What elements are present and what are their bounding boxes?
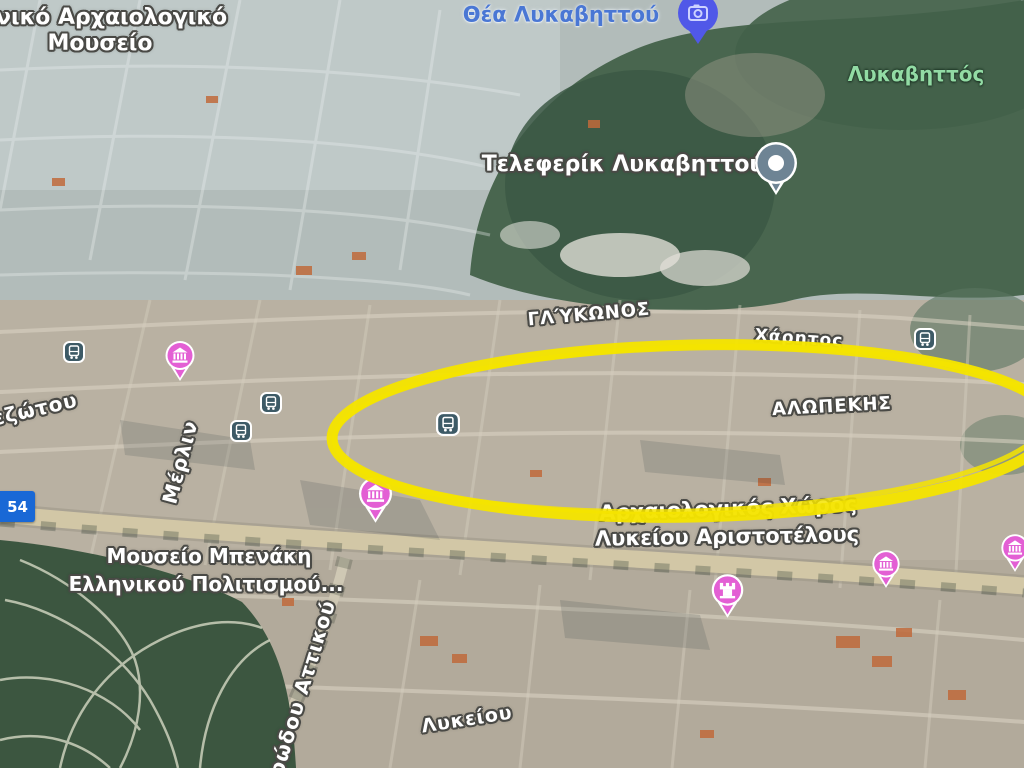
transit-icon[interactable] bbox=[914, 328, 936, 350]
label-funicular[interactable]: Τελεφερίκ Λυκαβηττού bbox=[482, 154, 765, 176]
photo-spot-pin[interactable] bbox=[676, 0, 720, 46]
route-badge-54: 54 bbox=[0, 491, 35, 522]
museum-icon bbox=[356, 476, 395, 525]
bus-icon bbox=[260, 392, 282, 414]
museum-pin[interactable] bbox=[163, 340, 197, 383]
label-national-archaeological-museum-line2[interactable]: Μουσείο bbox=[48, 33, 153, 55]
map-viewport: θνικό Αρχαιολογικό Μουσείο Θέα Λυκαβηττο… bbox=[0, 0, 1024, 768]
castle-icon bbox=[709, 573, 746, 620]
museum-pin[interactable] bbox=[999, 533, 1024, 574]
bus-icon bbox=[914, 328, 936, 350]
bus-icon bbox=[63, 341, 85, 363]
map-canvas[interactable] bbox=[0, 0, 1024, 768]
bus-icon bbox=[436, 412, 460, 436]
transit-icon[interactable] bbox=[436, 412, 460, 436]
dot-pin-icon bbox=[751, 140, 801, 198]
label-benaki-museum-line2[interactable]: Ελληνικού Πολιτισμού... bbox=[69, 574, 344, 594]
label-benaki-museum-line1[interactable]: Μουσείο Μπενάκη bbox=[106, 546, 311, 566]
museum-pin[interactable] bbox=[870, 549, 902, 590]
museum-icon bbox=[163, 340, 197, 383]
satellite-imagery bbox=[0, 0, 1024, 768]
poi-dot-pin[interactable] bbox=[751, 140, 801, 198]
label-lycabettus-view[interactable]: Θέα Λυκαβηττού bbox=[463, 5, 659, 26]
label-national-archaeological-museum-line1[interactable]: θνικό Αρχαιολογικό bbox=[0, 7, 227, 29]
label-lyceum-site-line2[interactable]: Λυκείου Αριστοτέλους bbox=[595, 524, 860, 550]
transit-icon[interactable] bbox=[230, 420, 252, 442]
landmark-pin[interactable] bbox=[709, 573, 746, 620]
museum-icon bbox=[999, 533, 1024, 574]
museum-icon bbox=[870, 549, 902, 590]
label-lycabettus-hill[interactable]: Λυκαβηττός bbox=[848, 64, 985, 84]
museum-pin[interactable] bbox=[356, 476, 395, 525]
transit-icon[interactable] bbox=[260, 392, 282, 414]
camera-icon bbox=[676, 0, 720, 46]
bus-icon bbox=[230, 420, 252, 442]
transit-icon[interactable] bbox=[63, 341, 85, 363]
